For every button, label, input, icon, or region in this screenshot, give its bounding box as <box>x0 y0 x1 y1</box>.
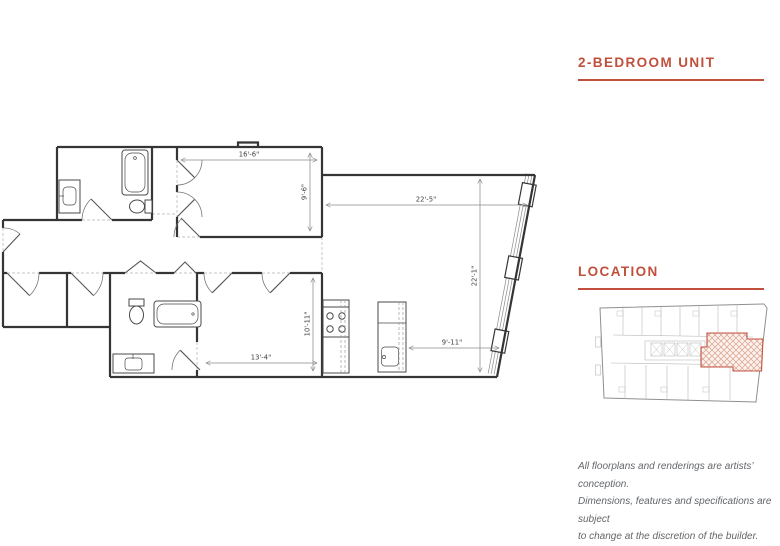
swing-door <box>174 262 196 273</box>
unit-floorplan: 16'-6" 9'-6" 22'-5" 22'-1" 10'-11" 13'-4… <box>0 130 570 400</box>
toilet <box>145 200 152 213</box>
floorplan-page: { "title": { "text": "2-BEDROOM UNIT" },… <box>0 0 780 517</box>
disclaimer-line: Dimensions, features and specifications … <box>578 493 778 528</box>
floorplan-drawing: 16'-6" 9'-6" 22'-5" 22'-1" 10'-11" 13'-4… <box>0 130 570 400</box>
disclaimer: All floorplans and renderings are artist… <box>578 458 778 546</box>
building-keyplan <box>595 299 773 409</box>
dim-label-master-depth: 9'-6" <box>301 184 309 200</box>
kitchen-fixtures <box>323 300 406 373</box>
unit-title: 2-BEDROOM UNIT <box>578 55 764 81</box>
opening-dashes <box>3 160 322 370</box>
highlighted-unit <box>701 333 763 371</box>
dim-label-kitchen-clear: 9'-11" <box>442 339 462 347</box>
disclaimer-line: All floorplans and renderings are artist… <box>578 458 778 493</box>
dim-label-bed2-depth: 10'-11" <box>304 312 312 337</box>
toilet <box>129 299 144 306</box>
kitchen-island <box>378 302 406 372</box>
bathroom-1-fixtures <box>59 150 152 213</box>
dim-label-living-width: 22'-5" <box>416 196 436 204</box>
location-map <box>595 299 773 409</box>
bathroom-2-fixtures <box>113 299 201 373</box>
dimensions: 16'-6" 9'-6" 22'-5" 22'-1" 10'-11" 13'-4… <box>181 151 527 373</box>
sidebar: 2-BEDROOM UNIT LOCATION <box>578 0 774 517</box>
vanity-sink <box>59 180 80 213</box>
disclaimer-line: to change at the discretion of the build… <box>578 528 778 546</box>
location-title: LOCATION <box>578 264 764 290</box>
swing-door <box>125 261 156 273</box>
dim-label-bed2-width: 13'-4" <box>251 354 271 362</box>
dim-label-living-depth: 22'-1" <box>471 266 479 286</box>
dim-label-master-width: 16'-6" <box>239 151 259 159</box>
